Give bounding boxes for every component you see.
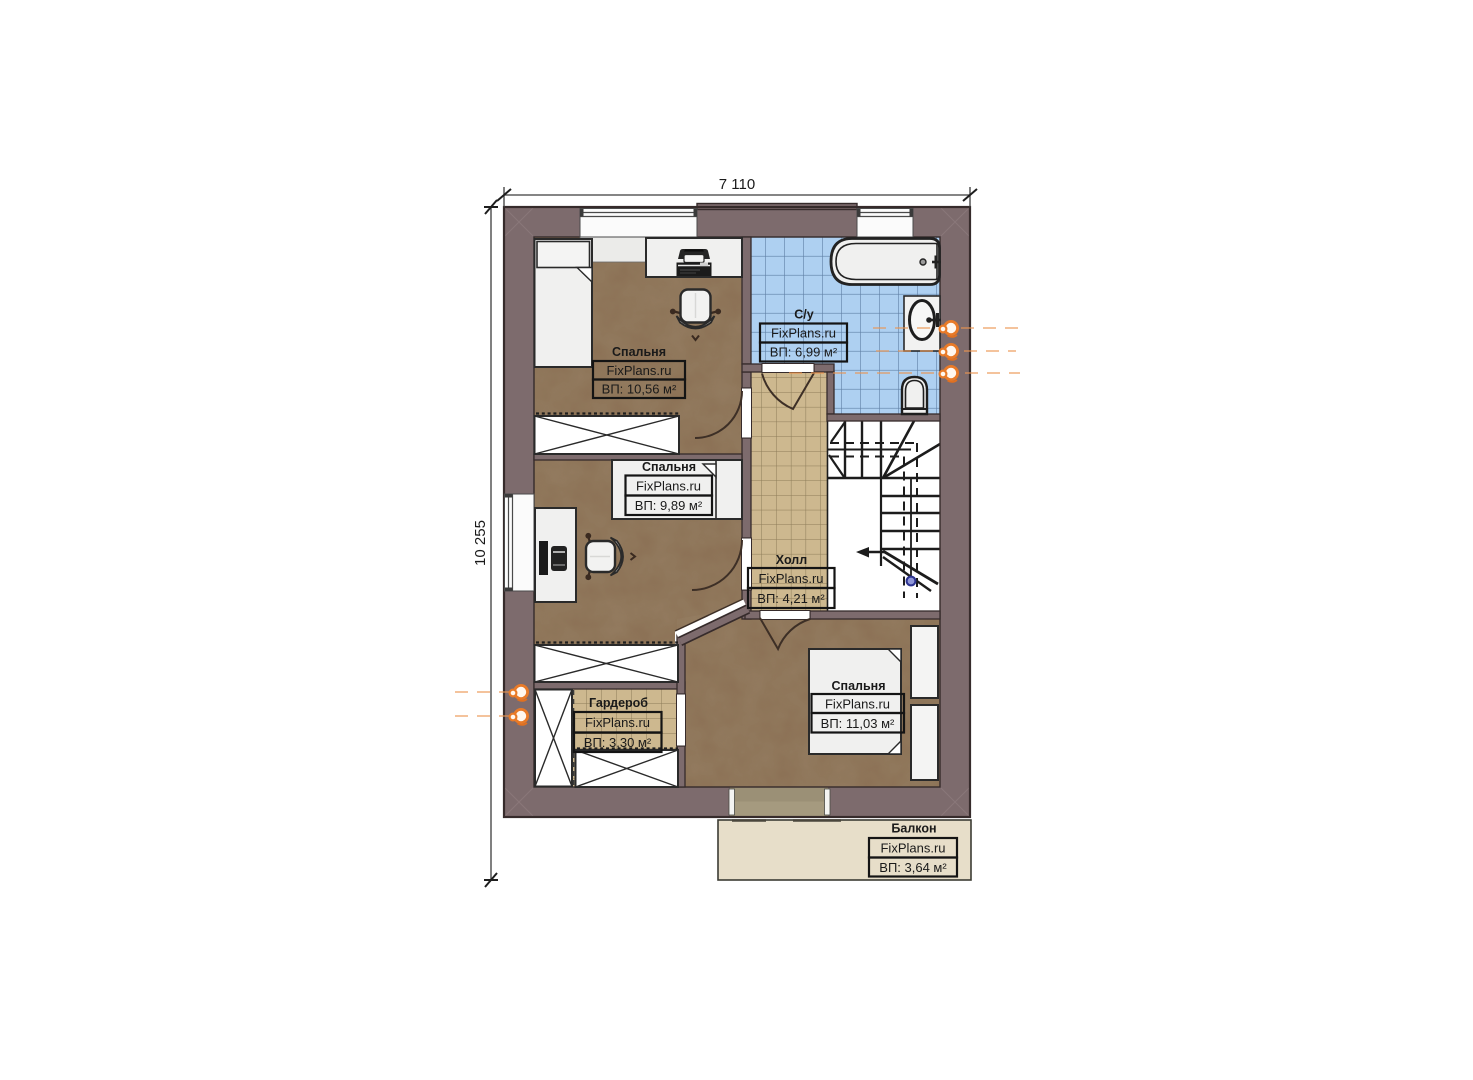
svg-text:FixPlans.ru: FixPlans.ru <box>771 326 836 341</box>
svg-text:Холл: Холл <box>776 553 807 567</box>
svg-text:FixPlans.ru: FixPlans.ru <box>880 841 945 856</box>
svg-text:10 255: 10 255 <box>472 520 489 566</box>
svg-text:FixPlans.ru: FixPlans.ru <box>825 697 890 712</box>
svg-text:ВП: 3,64 м²: ВП: 3,64 м² <box>879 860 947 875</box>
svg-text:ВП: 9,89 м²: ВП: 9,89 м² <box>635 498 703 513</box>
svg-text:FixPlans.ru: FixPlans.ru <box>606 363 671 378</box>
svg-text:Спальня: Спальня <box>642 460 696 474</box>
svg-text:Балкон: Балкон <box>891 822 936 836</box>
svg-text:ВП: 10,56 м²: ВП: 10,56 м² <box>602 382 677 397</box>
svg-text:ВП: 11,03 м²: ВП: 11,03 м² <box>821 716 895 731</box>
svg-text:Спальня: Спальня <box>612 345 666 359</box>
svg-text:ВП: 6,99 м²: ВП: 6,99 м² <box>770 345 838 360</box>
svg-text:FixPlans.ru: FixPlans.ru <box>636 479 701 494</box>
svg-text:ВП: 3,30 м²: ВП: 3,30 м² <box>584 735 652 750</box>
svg-text:Спальня: Спальня <box>832 679 886 693</box>
svg-text:ВП: 4,21 м²: ВП: 4,21 м² <box>757 591 825 606</box>
svg-text:С/у: С/у <box>794 308 814 322</box>
svg-text:FixPlans.ru: FixPlans.ru <box>758 571 823 586</box>
svg-text:7 110: 7 110 <box>719 176 755 193</box>
svg-text:FixPlans.ru: FixPlans.ru <box>585 715 650 730</box>
svg-text:Гардероб: Гардероб <box>589 696 648 710</box>
